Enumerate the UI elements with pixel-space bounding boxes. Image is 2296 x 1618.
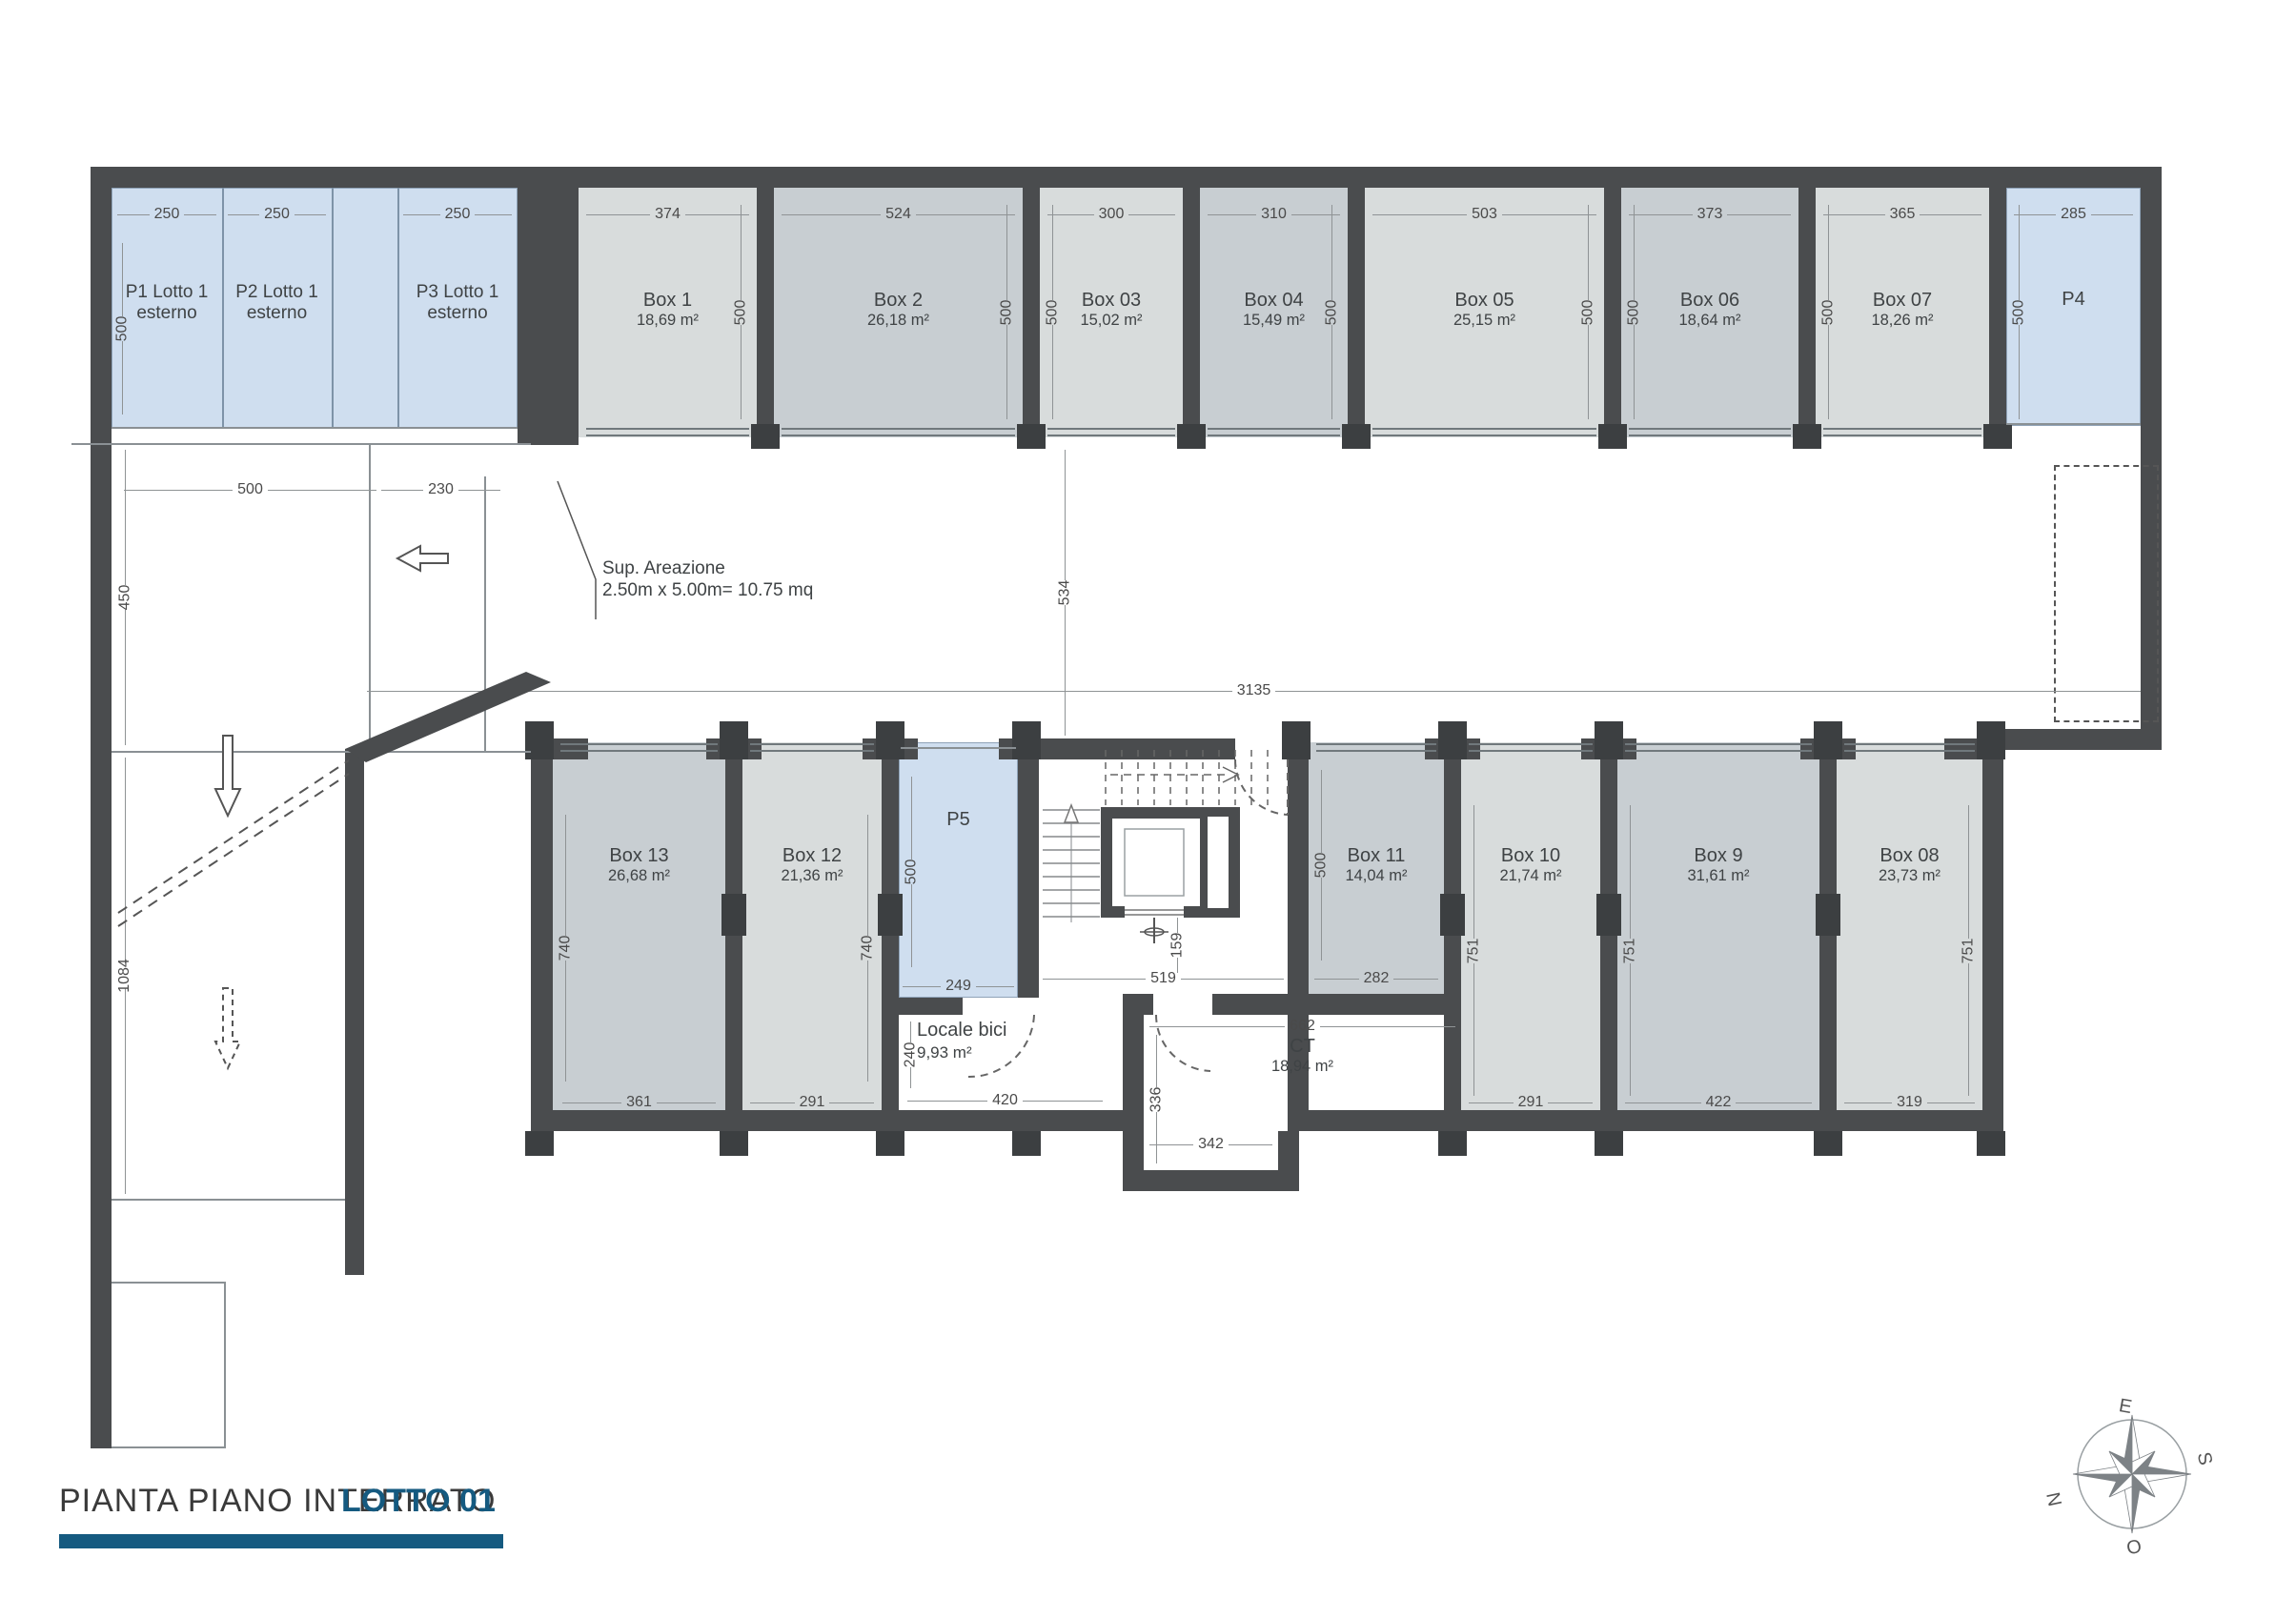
compass-rose: E S O N: [2043, 1395, 2216, 1559]
pillar: [1793, 424, 1821, 449]
room-box13: [553, 742, 725, 1110]
floor-plan-canvas: 250 250 250 374 524 300 310 503 373 365 …: [0, 0, 2296, 1618]
garage-door-line: [1625, 743, 1812, 745]
pillar: [1012, 721, 1041, 759]
dim-box03-width: 300: [1047, 206, 1175, 223]
vent-leader-line: [558, 481, 596, 619]
pillar: [1595, 721, 1623, 759]
pillar: [1816, 894, 1840, 936]
dim-p4-width: 285: [2014, 206, 2133, 223]
pillar: [1342, 424, 1371, 449]
dim-p3-width: 250: [403, 206, 512, 223]
dim-p2-width: 250: [228, 206, 326, 223]
wall: [1299, 1110, 2003, 1131]
label-box06: Box 0618,64 m²: [1621, 289, 1798, 331]
pillar: [1177, 424, 1206, 449]
garage-door-line: [1844, 750, 1975, 752]
stair-treads: [1043, 805, 1100, 922]
garage-door-line: [750, 750, 874, 752]
wall: [91, 167, 112, 1448]
pillar: [1595, 1131, 1623, 1156]
dim-p4-height: 500: [2010, 205, 2027, 419]
label-p4: P4: [2006, 288, 2141, 311]
line: [71, 443, 531, 445]
line: [112, 1199, 345, 1201]
compass-east-label: E: [2118, 1395, 2134, 1418]
dim-box13-width: 361: [562, 1094, 716, 1111]
stair-direction-arrowhead: [1223, 767, 1238, 782]
garage-door-line: [1372, 428, 1596, 430]
label-p2: P2 Lotto 1esterno: [222, 282, 332, 324]
pillar: [1814, 1131, 1842, 1156]
garage-door-line: [1629, 435, 1791, 436]
wall: [531, 1110, 1123, 1131]
dim-box07-width: 365: [1823, 206, 1981, 223]
garage-door-line: [1823, 435, 1981, 436]
dim-left-1084: 1084: [116, 758, 133, 1194]
dim-left-230: 230: [381, 481, 500, 498]
pillar: [525, 721, 554, 759]
dim-p5-height: 500: [903, 777, 920, 967]
garage-door-line: [586, 428, 749, 430]
pillar: [876, 1131, 904, 1156]
stair-up-arrow-icon: [1065, 805, 1078, 822]
garage-door-line: [1469, 750, 1593, 752]
label-p1: P1 Lotto 1esterno: [112, 282, 222, 324]
dim-box10-width: 291: [1469, 1094, 1593, 1111]
label-box13: Box 1326,68 m²: [553, 844, 725, 886]
line: [901, 747, 1016, 749]
dim-box9-width: 422: [1625, 1094, 1812, 1111]
compass-west-label: O: [2125, 1536, 2143, 1559]
pillar: [1438, 1131, 1467, 1156]
garage-door-line: [1372, 435, 1596, 436]
down-arrow-icon: [215, 736, 240, 816]
label-box08: Box 0823,73 m²: [1837, 844, 1982, 886]
garage-door-line: [1823, 428, 1981, 430]
label-p3: P3 Lotto 1esterno: [397, 282, 518, 324]
pillar: [720, 1131, 748, 1156]
label-box11: Box 1114,04 m²: [1309, 844, 1444, 886]
compass-north-label: N: [2043, 1490, 2067, 1508]
pillar: [1012, 1131, 1041, 1156]
garage-door-line: [1316, 743, 1436, 745]
title-underline-bar: [59, 1534, 503, 1548]
wall: [518, 167, 579, 445]
dim-box04-width: 310: [1208, 206, 1340, 223]
label-locale-bici: Locale bici 9,93 m²: [917, 1020, 1007, 1063]
garage-door-line: [782, 435, 1015, 436]
dim-corridor-height: 534: [1056, 450, 1073, 736]
dim-p1-height: 500: [113, 243, 131, 415]
pillar: [876, 721, 904, 759]
pillar: [1017, 424, 1046, 449]
dim-corridor-length: 3135: [367, 682, 2141, 699]
garage-door-line: [1316, 750, 1436, 752]
wall: [1798, 167, 1816, 424]
dim-p5-width: 249: [903, 978, 1014, 995]
garage-door-line: [1047, 428, 1175, 430]
dim-left-450: 450: [116, 450, 133, 745]
label-box03: Box 0315,02 m²: [1040, 289, 1183, 331]
pillar: [751, 424, 780, 449]
line: [484, 476, 486, 751]
line: [112, 1446, 226, 1448]
wall: [91, 167, 2162, 188]
dim-stair-width: 519: [1043, 970, 1284, 987]
label-box04: Box 0415,49 m²: [1200, 289, 1348, 331]
dim-box12-width: 291: [750, 1094, 874, 1111]
wall: [899, 998, 963, 1015]
dim-box2-width: 524: [782, 206, 1015, 223]
label-box9: Box 931,61 m²: [1617, 844, 1819, 886]
label-box12: Box 1221,36 m²: [742, 844, 882, 886]
dim-box06-width: 373: [1629, 206, 1791, 223]
garage-door-line: [782, 428, 1015, 430]
wall: [1982, 729, 2162, 750]
pillar: [1814, 721, 1842, 759]
dim-elevator-offset: 159: [1168, 918, 1186, 973]
line: [112, 751, 531, 753]
garage-door-line: [1469, 743, 1593, 745]
wall: [1123, 1170, 1299, 1191]
label-box07: Box 0718,26 m²: [1816, 289, 1989, 331]
pillar: [1596, 894, 1621, 936]
left-arrow-icon: [397, 546, 448, 571]
garage-door-line: [1629, 428, 1791, 430]
garage-door-line: [1208, 428, 1340, 430]
dim-box05-width: 503: [1372, 206, 1596, 223]
wall: [1989, 167, 2006, 424]
wall: [1278, 1131, 1299, 1191]
wall: [1212, 994, 1461, 1015]
label-p5: P5: [899, 808, 1018, 831]
pillar: [721, 894, 746, 936]
dim-ct-top-width: 662: [1149, 1018, 1455, 1035]
pillar: [1977, 1131, 2005, 1156]
garage-door-line: [1625, 750, 1812, 752]
dim-box1-width: 374: [586, 206, 749, 223]
dim-box11-width: 282: [1314, 970, 1438, 987]
wall: [757, 167, 774, 424]
room-box9: [1617, 742, 1819, 1110]
ramp-wall: [345, 749, 364, 1275]
wall: [1982, 738, 2003, 1131]
wall: [531, 738, 553, 1131]
pillar: [1438, 721, 1467, 759]
pillar: [1598, 424, 1627, 449]
wall: [1123, 994, 1144, 1191]
stair-door-opening: [1235, 738, 1288, 761]
garage-door-line: [750, 743, 874, 745]
label-box10: Box 1021,74 m²: [1461, 844, 1600, 886]
dim-locale-width: 420: [907, 1092, 1103, 1109]
wall: [1348, 167, 1365, 424]
line: [112, 427, 518, 429]
pillar: [1440, 894, 1465, 936]
garage-door-line: [1047, 435, 1175, 436]
pillar: [1983, 424, 2012, 449]
ramp-dashed-line: [118, 774, 349, 926]
label-box2: Box 226,18 m²: [774, 289, 1023, 331]
ramp-dashed-line: [118, 760, 349, 913]
dim-ct-bottom-width: 342: [1149, 1136, 1272, 1153]
vent-annotation: Sup. Areazione 2.50m x 5.00m= 10.75 mq: [602, 557, 813, 601]
garage-door-line: [560, 743, 718, 745]
wall: [1018, 738, 1039, 998]
garage-door-line: [560, 750, 718, 752]
garage-door-line: [1208, 435, 1340, 436]
label-ct: CT18,94 m²: [1144, 1035, 1461, 1077]
garage-door-line: [1844, 743, 1975, 745]
pillar: [525, 1131, 554, 1156]
compass-south-label: S: [2193, 1450, 2216, 1467]
garage-door-line: [586, 435, 749, 436]
dim-box08-width: 319: [1844, 1094, 1975, 1111]
wall: [1183, 167, 1200, 424]
label-box1: Box 118,69 m²: [579, 289, 757, 331]
line: [2006, 423, 2141, 425]
down-arrow-dashed-icon: [215, 988, 240, 1068]
wall: [1023, 167, 1040, 424]
pillar: [878, 894, 903, 936]
pillar: [1977, 721, 2005, 759]
parking-divider: [332, 188, 334, 428]
pillar: [1282, 721, 1311, 759]
pillar: [720, 721, 748, 759]
line: [112, 1282, 226, 1284]
lot-title: LOTTO 01: [341, 1483, 496, 1520]
dim-p1-width: 250: [117, 206, 216, 223]
wall: [1604, 167, 1621, 424]
label-box05: Box 0525,15 m²: [1365, 289, 1604, 331]
dim-left-500: 500: [124, 481, 376, 498]
line: [224, 1282, 226, 1448]
